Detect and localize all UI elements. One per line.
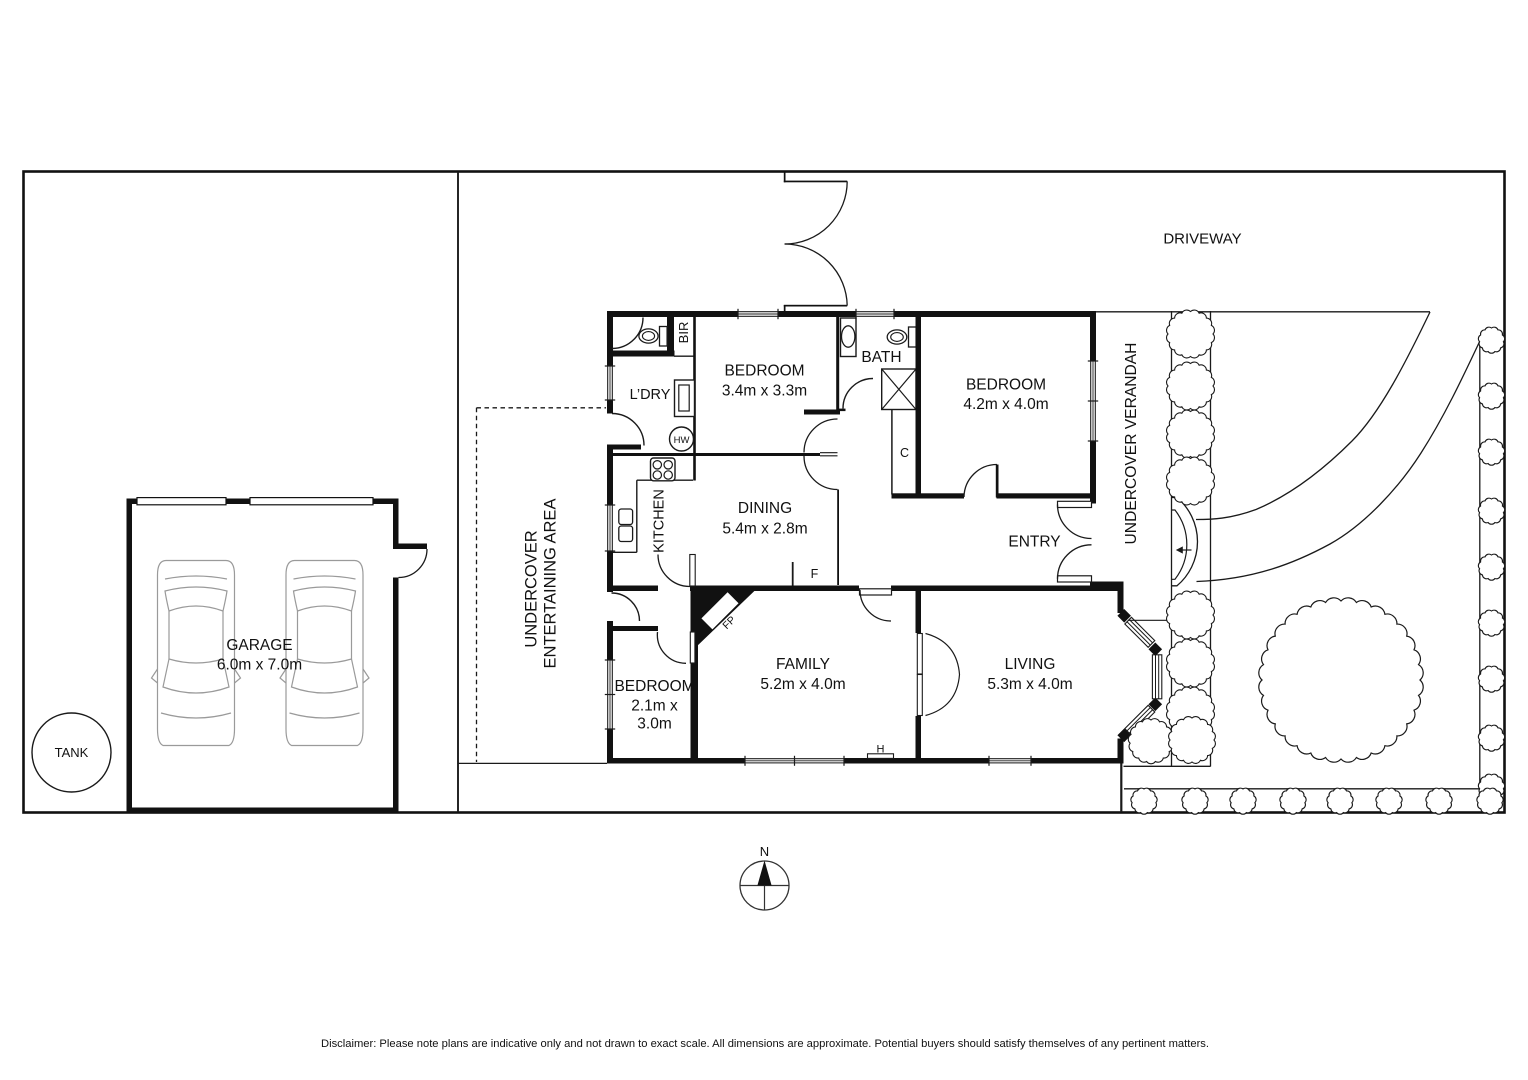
svg-text:UNDERCOVER VERANDAH: UNDERCOVER VERANDAH: [1123, 343, 1140, 545]
svg-text:DINING: DINING: [738, 500, 792, 517]
svg-text:5.2m x 4.0m: 5.2m x 4.0m: [760, 676, 845, 693]
svg-text:C: C: [900, 446, 909, 460]
svg-text:H: H: [877, 744, 885, 756]
svg-text:LIVING: LIVING: [1005, 656, 1056, 673]
svg-text:3.0m: 3.0m: [637, 716, 671, 733]
svg-text:BEDROOM: BEDROOM: [966, 377, 1046, 394]
svg-text:N: N: [760, 844, 769, 859]
svg-text:5.4m x 2.8m: 5.4m x 2.8m: [722, 521, 807, 538]
svg-text:Disclaimer: Please note plans: Disclaimer: Please note plans are indica…: [321, 1038, 1209, 1050]
svg-text:ENTERTAINING AREA: ENTERTAINING AREA: [541, 499, 559, 669]
svg-text:L’DRY: L’DRY: [630, 387, 671, 403]
svg-text:F: F: [811, 567, 819, 581]
svg-text:BEDROOM: BEDROOM: [614, 678, 694, 695]
svg-text:GARAGE: GARAGE: [226, 637, 292, 654]
svg-text:6.0m x 7.0m: 6.0m x 7.0m: [217, 657, 302, 674]
svg-text:2.1m x: 2.1m x: [631, 698, 678, 715]
svg-text:FAMILY: FAMILY: [776, 656, 830, 673]
svg-text:KITCHEN: KITCHEN: [652, 489, 668, 553]
svg-text:TANK: TANK: [55, 745, 89, 760]
svg-text:5.3m x 4.0m: 5.3m x 4.0m: [987, 676, 1072, 693]
svg-text:4.2m x 4.0m: 4.2m x 4.0m: [963, 396, 1048, 413]
svg-text:3.4m x 3.3m: 3.4m x 3.3m: [722, 383, 807, 400]
svg-text:UNDERCOVER: UNDERCOVER: [522, 530, 540, 647]
svg-text:BEDROOM: BEDROOM: [724, 363, 804, 380]
svg-text:ENTRY: ENTRY: [1008, 534, 1060, 551]
svg-text:BATH: BATH: [861, 349, 901, 366]
svg-text:DRIVEWAY: DRIVEWAY: [1163, 231, 1241, 248]
svg-text:BIR: BIR: [676, 322, 691, 344]
svg-text:HW: HW: [674, 435, 690, 446]
